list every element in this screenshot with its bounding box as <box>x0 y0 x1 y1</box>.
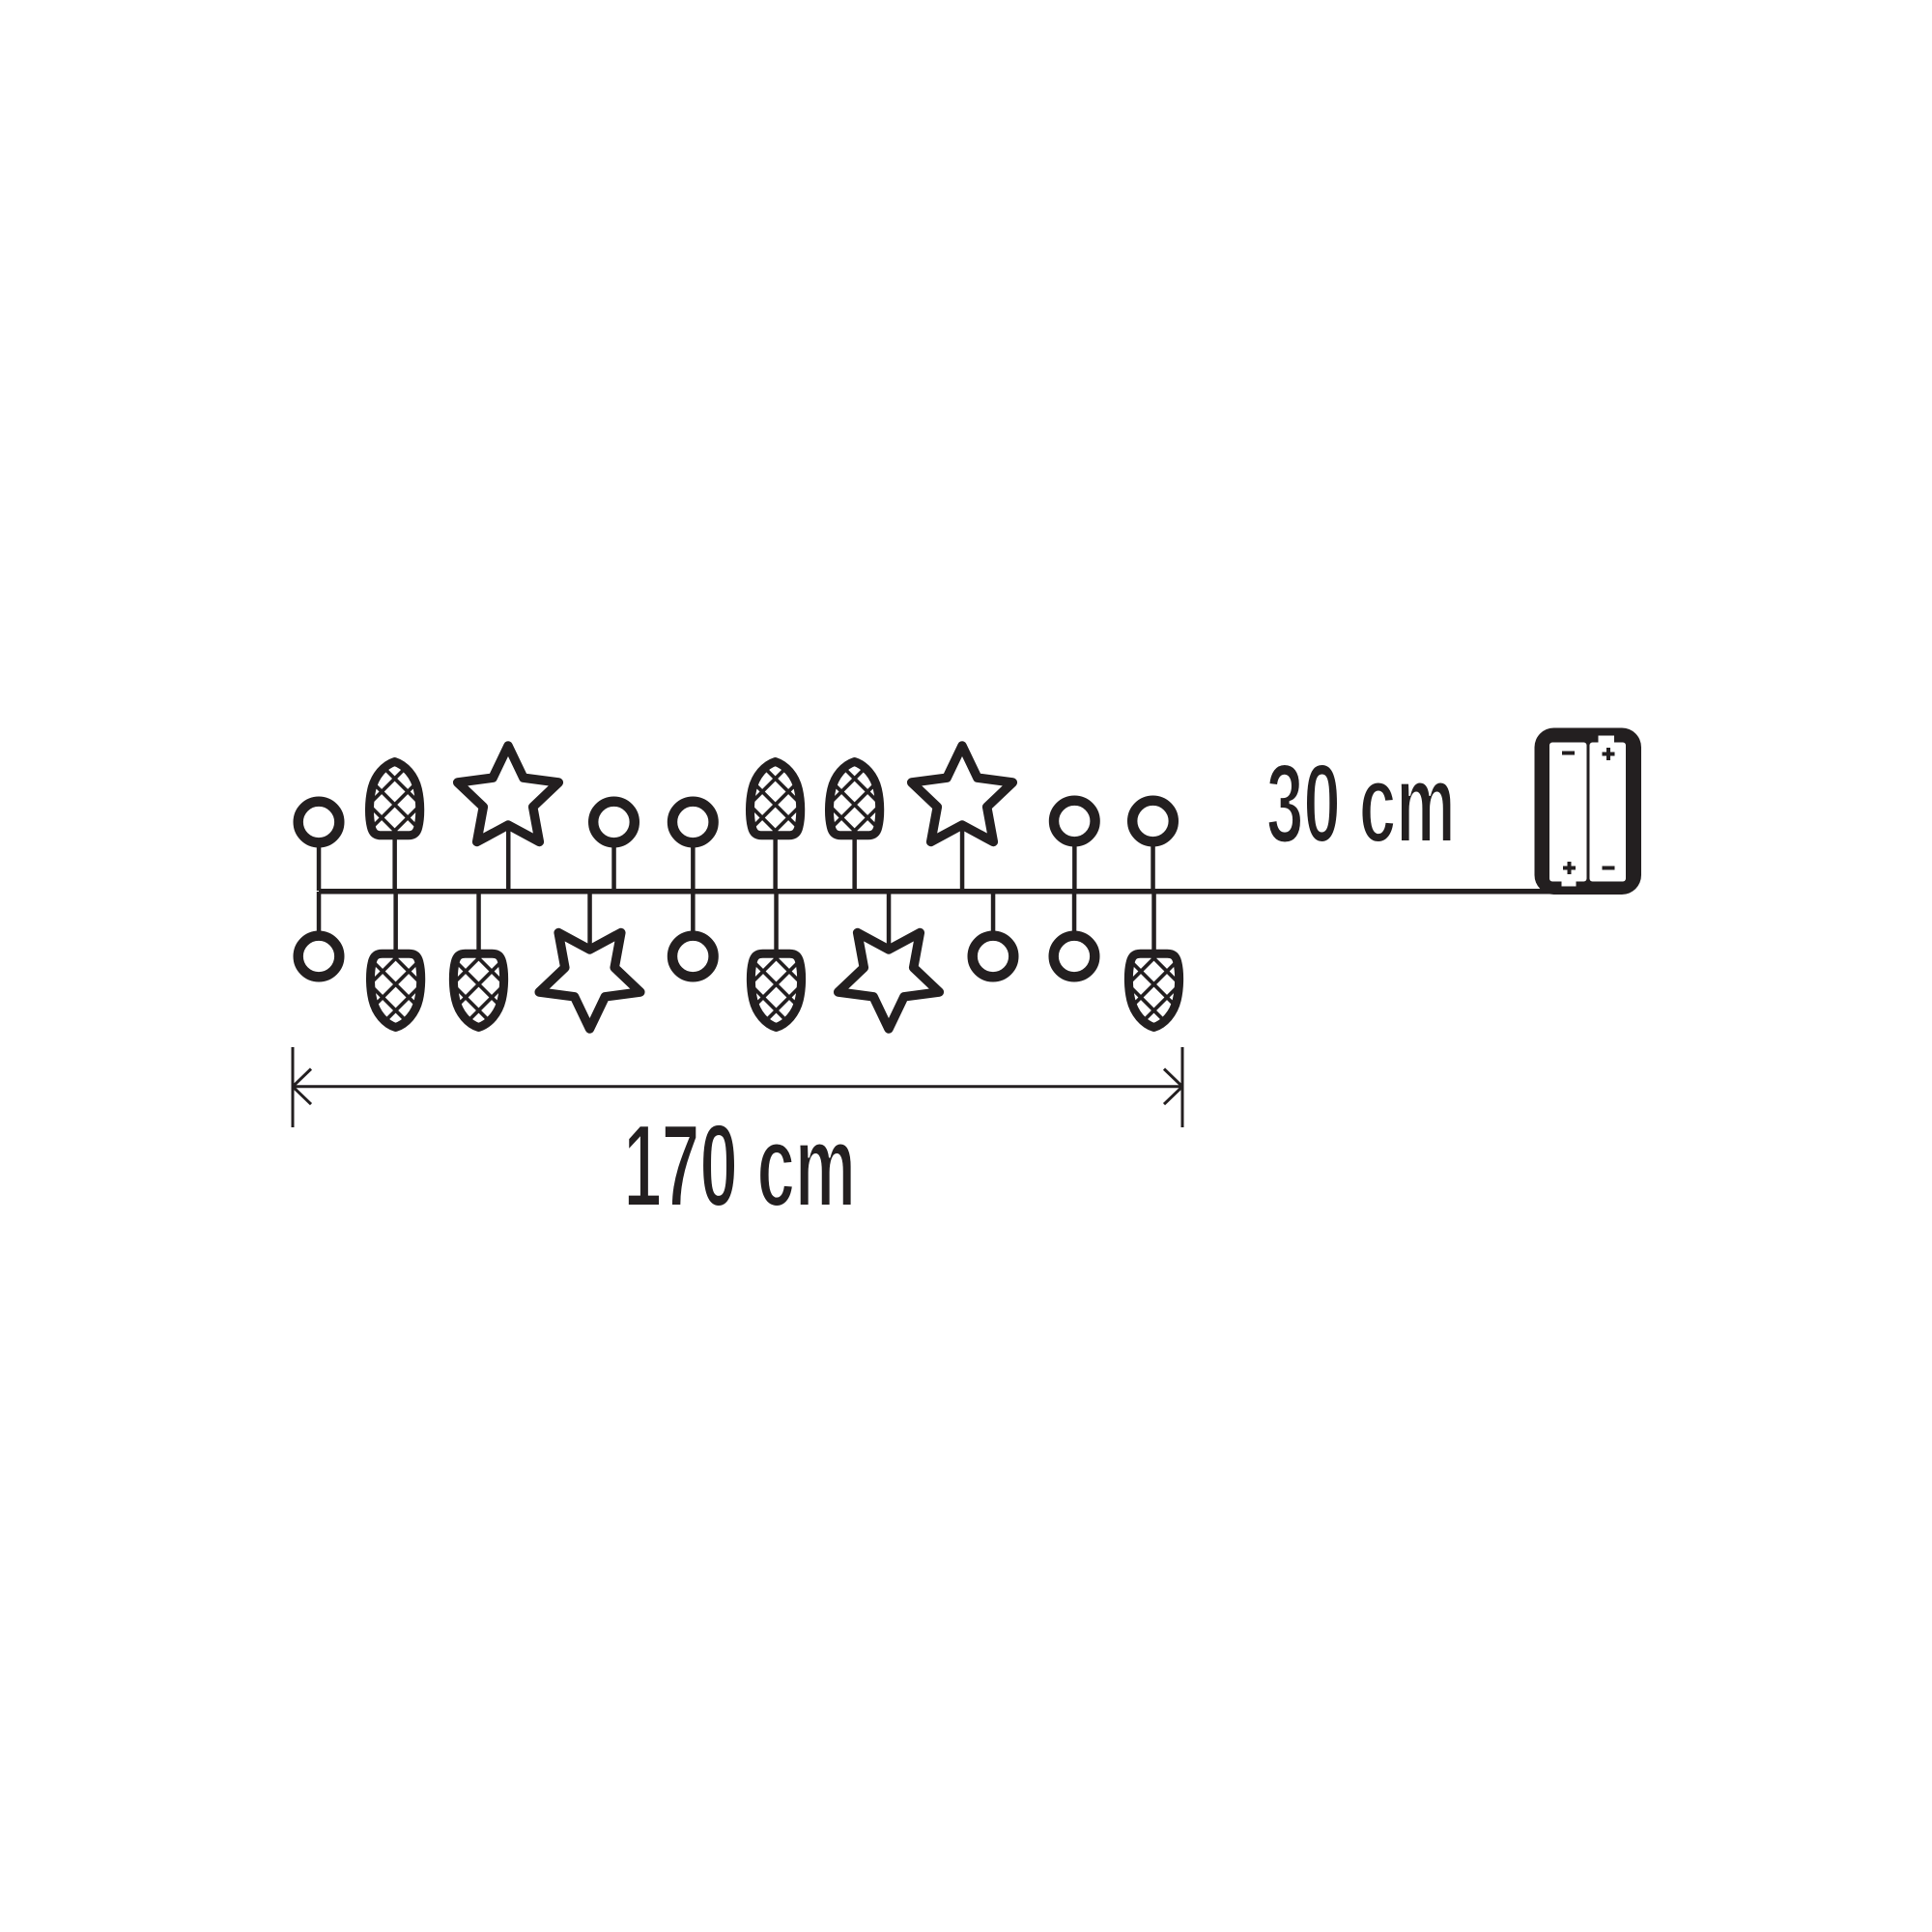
svg-text:30 cm: 30 cm <box>1266 742 1456 867</box>
svg-text:170 cm: 170 cm <box>624 1101 856 1233</box>
